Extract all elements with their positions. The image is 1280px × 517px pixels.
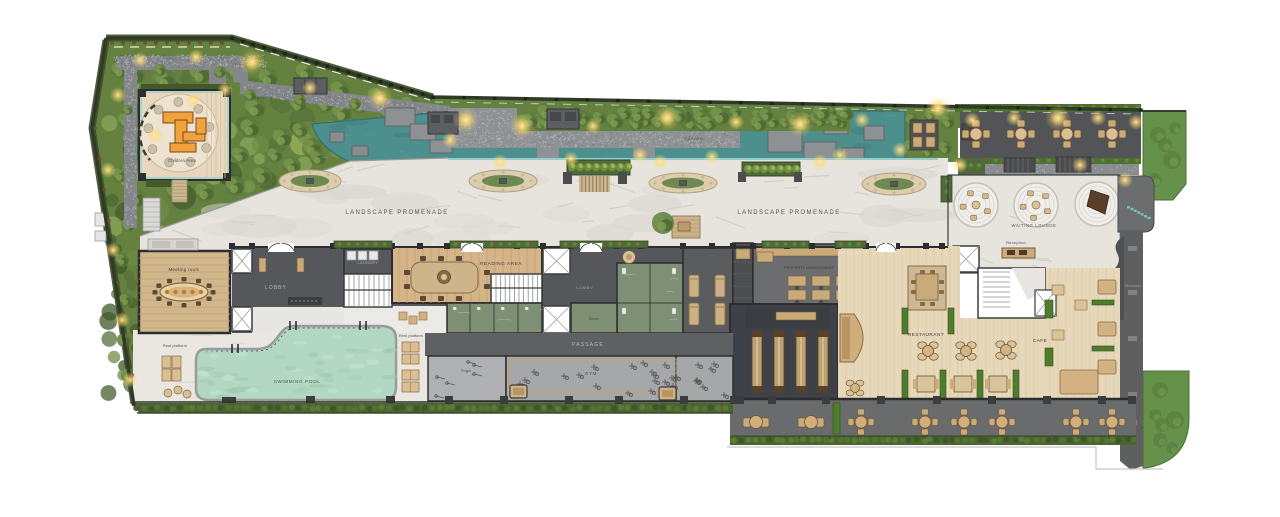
svg-text:LOBBY: LOBBY bbox=[265, 285, 287, 291]
svg-text:LANDSCAPE PROMENADE: LANDSCAPE PROMENADE bbox=[737, 210, 840, 216]
svg-text:READING AREA: READING AREA bbox=[480, 261, 522, 267]
svg-text:CAFE: CAFE bbox=[1033, 338, 1047, 344]
svg-text:PROPERTY MANAGEMENT: PROPERTY MANAGEMENT bbox=[784, 266, 835, 270]
svg-text:WAITING LOUNGE: WAITING LOUNGE bbox=[1011, 223, 1056, 228]
svg-text:GARDEN: GARDEN bbox=[685, 137, 704, 141]
svg-text:Steam: Steam bbox=[589, 317, 599, 321]
svg-text:LOBBY: LOBBY bbox=[576, 285, 593, 290]
svg-text:Verandah: Verandah bbox=[1125, 284, 1142, 288]
svg-text:LAUNDRY: LAUNDRY bbox=[358, 261, 379, 265]
svg-text:Children Area: Children Area bbox=[168, 158, 196, 163]
svg-text:PASSAGE: PASSAGE bbox=[572, 342, 604, 348]
svg-text:GYM: GYM bbox=[585, 371, 598, 376]
svg-text:Yoga: Yoga bbox=[461, 368, 472, 373]
svg-text:RESTAURANT: RESTAURANT bbox=[908, 332, 944, 338]
svg-text:SWIMMING POOL: SWIMMING POOL bbox=[274, 379, 321, 385]
svg-text:Meeting room: Meeting room bbox=[168, 267, 199, 272]
svg-text:Reception: Reception bbox=[1006, 240, 1026, 245]
svg-text:Rest platform: Rest platform bbox=[163, 344, 187, 348]
svg-text:GARDEN: GARDEN bbox=[254, 96, 273, 100]
svg-text:LANDSCAPE PROMENADE: LANDSCAPE PROMENADE bbox=[345, 210, 448, 216]
svg-text:Rest platform: Rest platform bbox=[399, 334, 423, 338]
